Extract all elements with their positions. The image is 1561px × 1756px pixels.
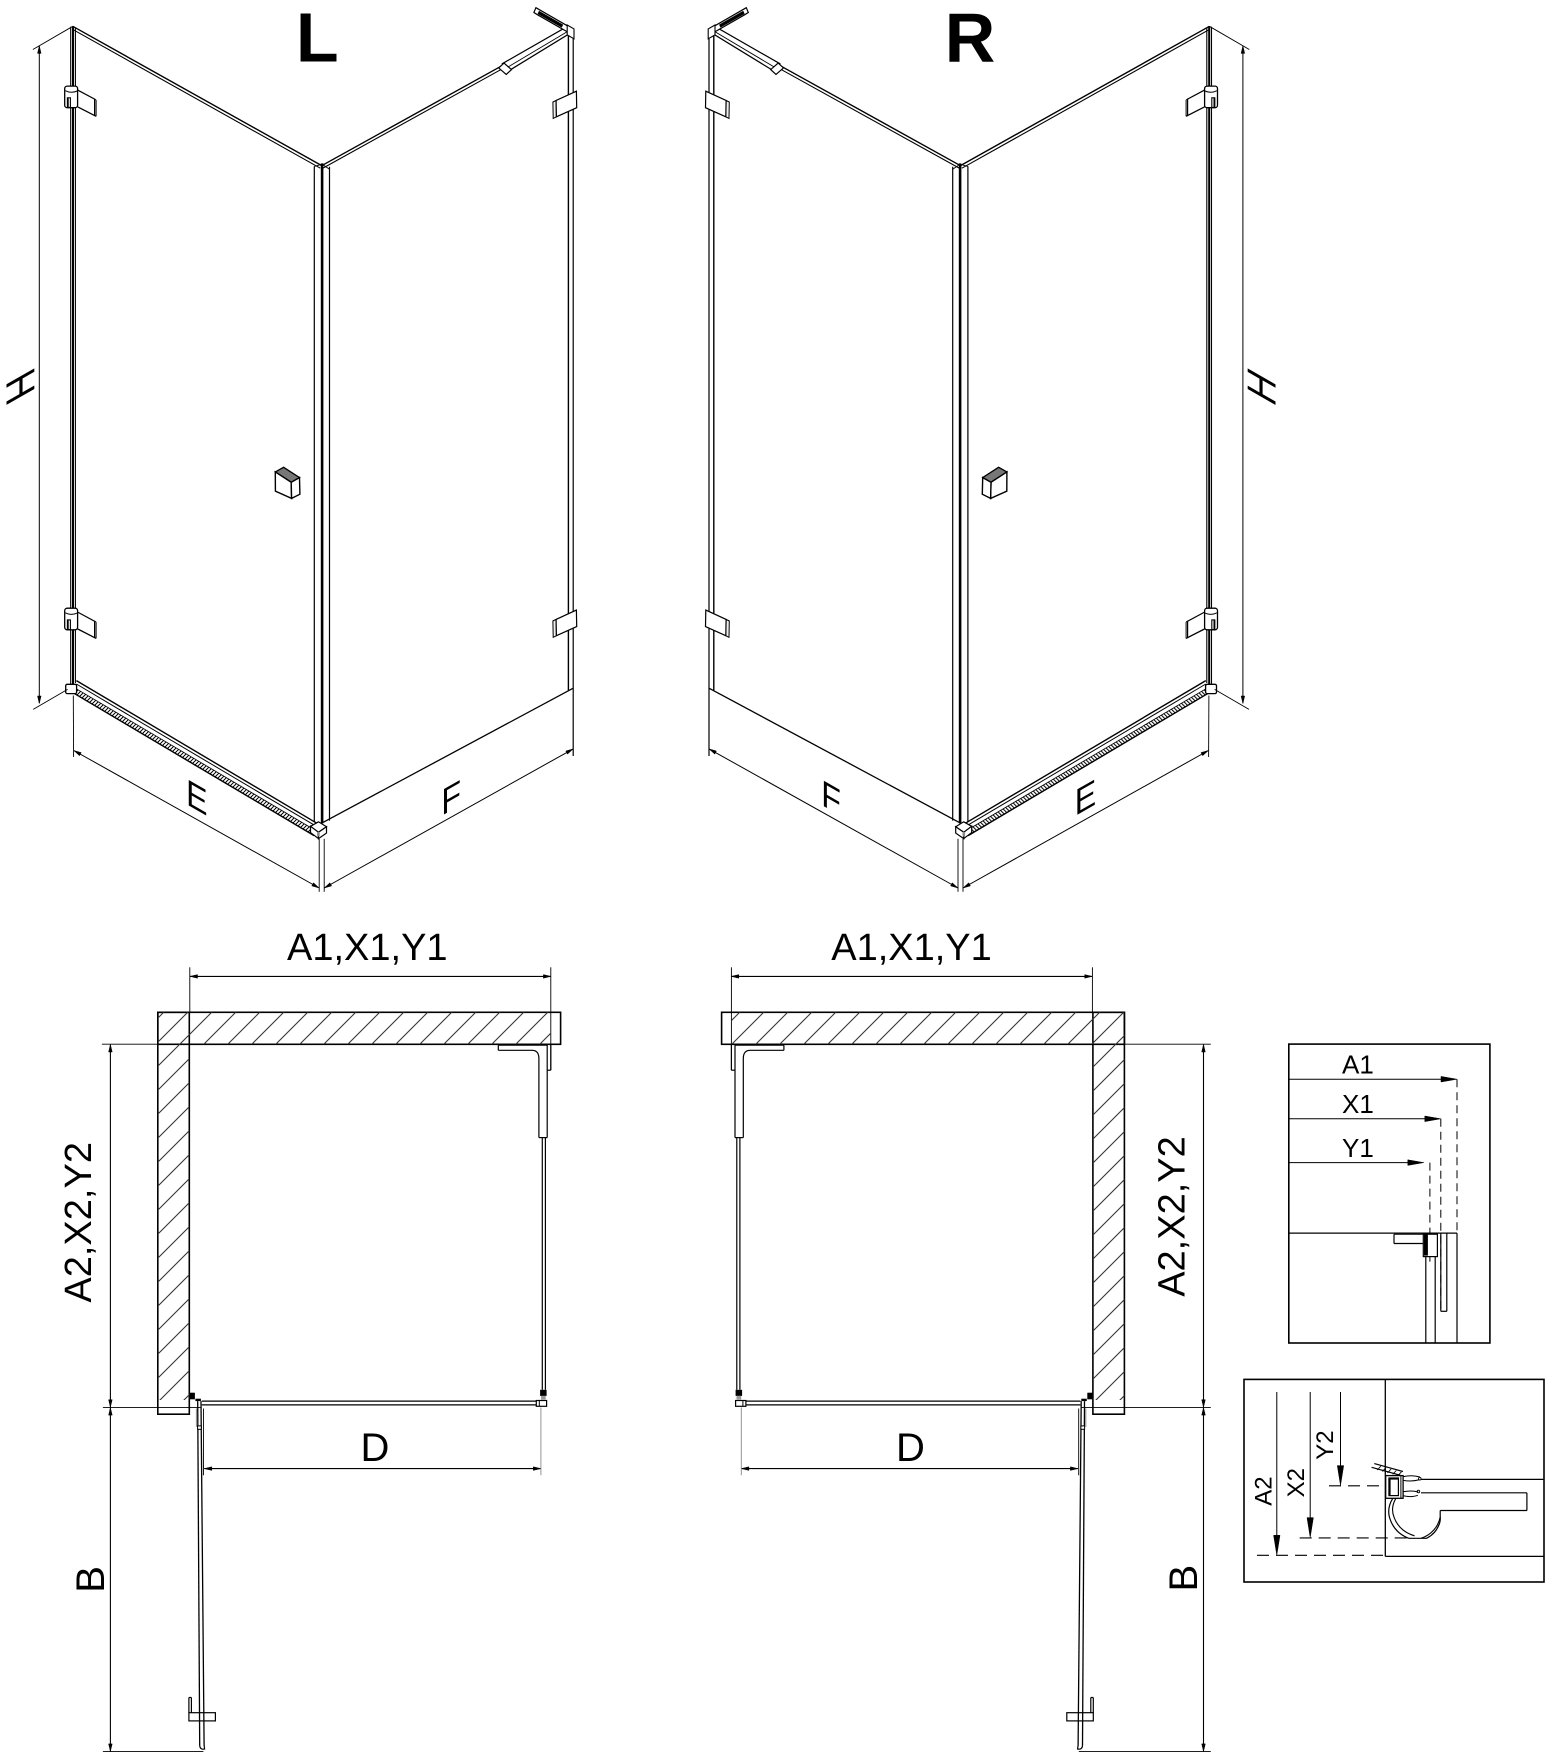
svg-text:X1: X1 (1342, 1089, 1374, 1119)
svg-text:A2,X2,Y2: A2,X2,Y2 (58, 1142, 100, 1303)
svg-text:D: D (361, 1426, 390, 1470)
svg-text:A1,X1,Y1: A1,X1,Y1 (287, 927, 448, 969)
svg-text:A1,X1,Y1: A1,X1,Y1 (831, 927, 992, 969)
svg-text:B: B (69, 1566, 113, 1593)
svg-text:A2,X2,Y2: A2,X2,Y2 (1152, 1136, 1194, 1297)
svg-text:R: R (945, 0, 996, 77)
svg-text:B: B (1162, 1565, 1206, 1592)
svg-text:L: L (296, 0, 339, 77)
svg-text:A1: A1 (1342, 1050, 1374, 1080)
svg-text:Y1: Y1 (1342, 1133, 1374, 1163)
svg-text:A2: A2 (1251, 1476, 1278, 1505)
svg-text:X2: X2 (1283, 1468, 1310, 1497)
svg-text:Y2: Y2 (1312, 1430, 1339, 1459)
svg-text:D: D (896, 1426, 925, 1470)
